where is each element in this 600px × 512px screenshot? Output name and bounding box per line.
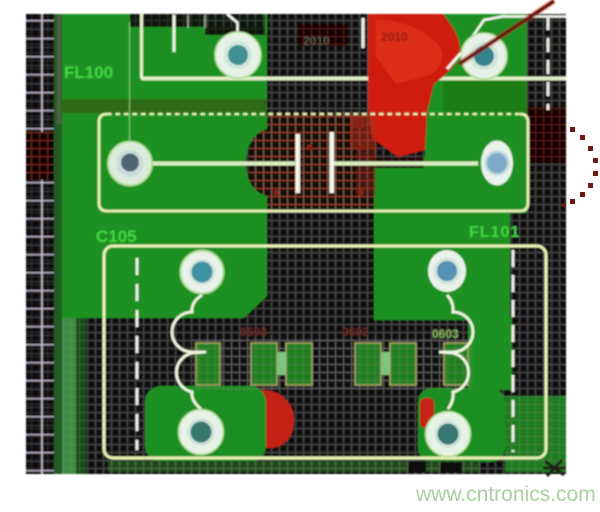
svg-text:www.cntronics.com: www.cntronics.com — [415, 483, 596, 506]
svg-text:C105: C105 — [96, 227, 137, 246]
svg-text:2010: 2010 — [381, 30, 408, 44]
svg-text:FL100: FL100 — [64, 63, 113, 82]
svg-text:0603: 0603 — [342, 325, 369, 339]
svg-text:0603: 0603 — [240, 325, 267, 339]
svg-text:2010: 2010 — [303, 34, 330, 48]
svg-text:FL101: FL101 — [469, 224, 520, 241]
svg-text:0603: 0603 — [432, 327, 459, 341]
